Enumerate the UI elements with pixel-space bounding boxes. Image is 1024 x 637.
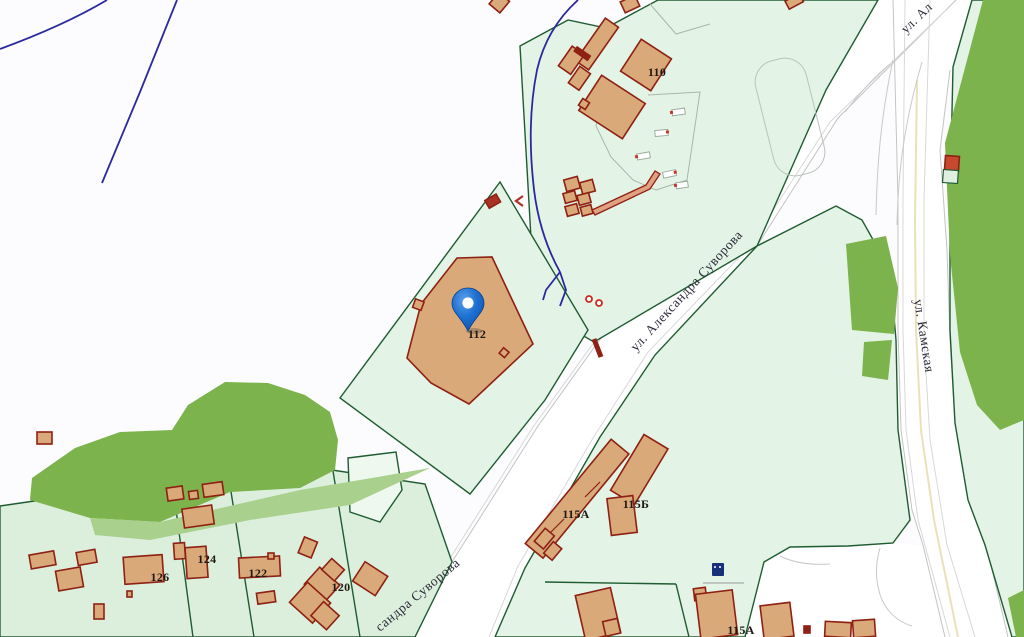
- house-number-110: 110: [648, 65, 666, 79]
- map-svg: ул. Александра Суворова сандра Суворова …: [0, 0, 1024, 637]
- house-number-126: 126: [151, 570, 170, 584]
- house-number-115a-bottom: 115А: [727, 623, 754, 637]
- dumpster-icon: [712, 563, 724, 576]
- pin-center-dot: [462, 297, 473, 308]
- vegetation-patch-2: [862, 340, 892, 380]
- house-number-115a-mid: 115А: [562, 507, 589, 521]
- map-canvas[interactable]: ул. Александра Суворова сандра Суворова …: [0, 0, 1024, 637]
- house-number-124: 124: [198, 552, 217, 566]
- house-number-115b: 115Б: [623, 497, 649, 511]
- house-number-122: 122: [249, 566, 268, 580]
- house-number-120: 120: [332, 580, 351, 594]
